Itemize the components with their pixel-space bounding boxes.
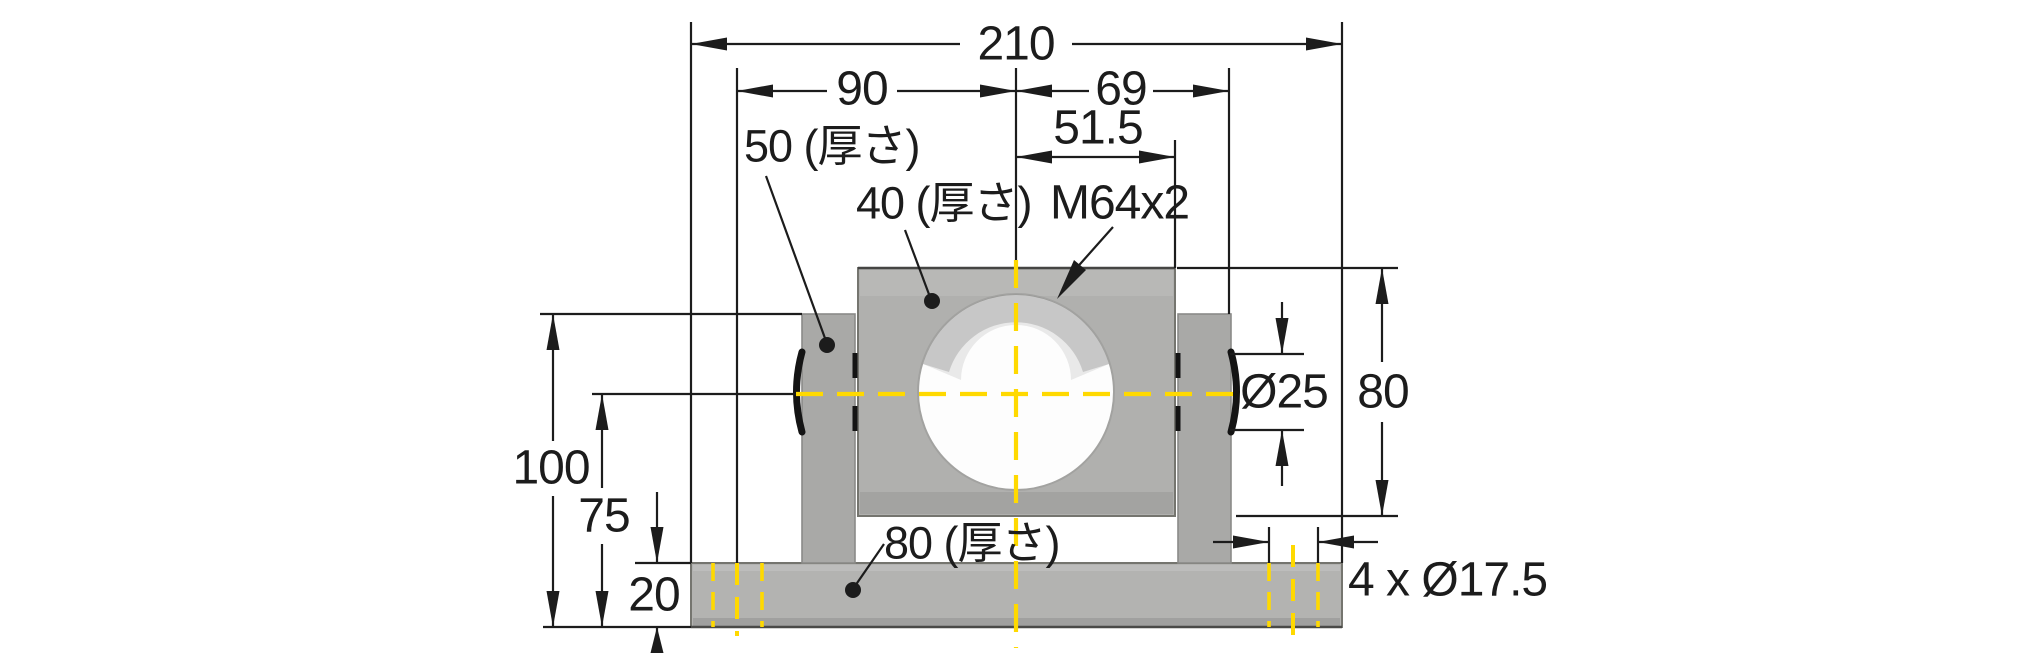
dim-80-arrow-bottom (1376, 480, 1389, 516)
drawing-svg: 210 90 69 51.5 100 75 (0, 0, 2040, 653)
dim-69-arrow-left (1016, 85, 1052, 98)
base-thickness-label: 80 (厚さ) (884, 518, 1060, 569)
dim-51-5-arrow-left (1016, 151, 1052, 164)
dim-210-arrow-left (691, 38, 727, 51)
leader-80-dot (845, 582, 861, 598)
dim-75-arrow-top (596, 394, 609, 430)
dim-base-height-label: 20 (628, 569, 679, 622)
dim-left-span-label: 90 (836, 63, 887, 116)
dim-overall-height-label: 100 (512, 442, 589, 495)
dim-20-arrow-bottom (651, 627, 664, 653)
engineering-drawing-canvas: 210 90 69 51.5 100 75 (0, 0, 2040, 653)
dim-90-arrow-right (980, 85, 1016, 98)
dim-half-width: 51.5 (1016, 102, 1175, 164)
dim-block-height: 80 (1357, 268, 1408, 516)
dim-90-arrow-left (737, 85, 773, 98)
dim-100-arrow-top (547, 314, 560, 350)
thread-spec-label: M64x2 (1050, 177, 1189, 230)
dim-100-arrow-bottom (547, 591, 560, 627)
dim-69-arrow-right (1193, 85, 1229, 98)
side-plate-thickness-label: 50 (厚さ) (744, 121, 920, 172)
dim-20-arrow-top (651, 527, 664, 563)
right-side-plate-body (1178, 314, 1231, 563)
dim-overall-width: 210 (691, 18, 1342, 71)
dim-210-arrow-right (1306, 38, 1342, 51)
dim-left-span: 90 (737, 63, 1016, 116)
dim-80-arrow-top (1376, 268, 1389, 304)
dim-center-height-label: 75 (578, 490, 629, 543)
dim-center-height: 75 (578, 394, 629, 627)
dim-block-height-label: 80 (1357, 366, 1408, 419)
dim-25-arrow-bottom (1276, 430, 1289, 466)
leader-40-dot (924, 293, 940, 309)
dim-half-width-label: 51.5 (1053, 102, 1142, 155)
dim-75-arrow-bottom (596, 591, 609, 627)
dim-mounting-holes-label: 4 x Ø17.5 (1348, 554, 1547, 607)
dim-51-5-arrow-right (1139, 151, 1175, 164)
dim-holes-arrow-left (1233, 536, 1269, 549)
dim-overall-width-label: 210 (977, 18, 1054, 71)
dim-base-height: 20 (628, 492, 679, 653)
dim-trunnion-diameter-label: Ø25 (1240, 366, 1328, 419)
right-side-plate (1178, 314, 1231, 563)
dim-25-arrow-top (1276, 318, 1289, 354)
dim-holes-arrow-right (1318, 536, 1354, 549)
leader-50-dot (819, 337, 835, 353)
dim-trunnion-diameter: Ø25 (1240, 302, 1328, 486)
leader-50-line (766, 176, 826, 341)
dim-overall-height: 100 (512, 314, 589, 627)
block-thickness-label: 40 (厚さ) (856, 178, 1032, 229)
